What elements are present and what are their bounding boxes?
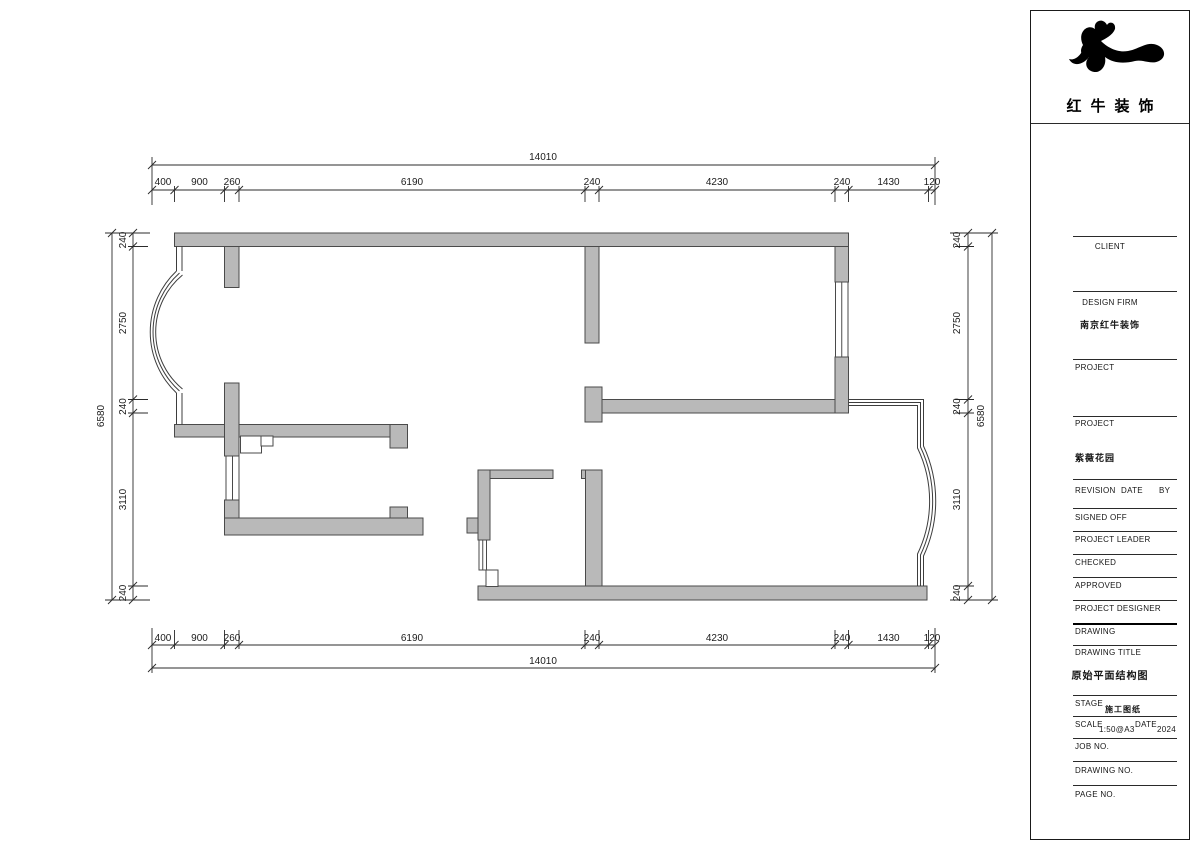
wall-right-pier-upper: [835, 247, 849, 283]
date-label-2: DATE: [1135, 720, 1157, 729]
wall-mid-horizontal-cap: [585, 387, 602, 422]
wall-bottom-left: [225, 518, 424, 535]
dim-left-overall: 6580: [96, 404, 107, 427]
dim-top-5: 4230: [706, 177, 729, 188]
dim-bottom-6: 240: [834, 633, 851, 644]
dim-bottom-4: 240: [584, 633, 601, 644]
wall-group: [175, 233, 928, 600]
dim-bottom-overall: 14010: [529, 656, 557, 667]
dim-left-1: 2750: [118, 311, 129, 334]
design-firm-name: 南京红牛装饰: [1031, 318, 1189, 331]
step-detail-large: [241, 436, 262, 453]
dim-top-7: 1430: [877, 177, 900, 188]
design-firm-label: DESIGN FIRM: [1031, 298, 1189, 307]
wall-mid-horizontal: [599, 400, 835, 414]
page-no-label: PAGE NO.: [1075, 790, 1115, 799]
dim-top-0: 400: [155, 177, 172, 188]
client-label: CLIENT: [1031, 242, 1189, 251]
wall-top: [175, 233, 849, 247]
wall-right-pier-lower: [835, 357, 849, 413]
dim-right-overall: 6580: [976, 404, 987, 427]
project-designer-label: PROJECT DESIGNER: [1075, 604, 1161, 613]
drawing-no-label: DRAWING NO.: [1075, 766, 1133, 775]
dim-top-3: 6190: [401, 177, 424, 188]
dim-bottom-1: 900: [191, 633, 208, 644]
project-label-2: PROJECT: [1075, 419, 1114, 428]
wall-bottom-left-notch: [390, 507, 408, 518]
dim-bottom-2: 260: [224, 633, 241, 644]
dim-right-1: 2750: [952, 311, 963, 334]
fixture-box: [486, 570, 498, 587]
dim-top-4: 240: [584, 177, 601, 188]
dim-right-3: 3110: [952, 488, 963, 510]
dim-top-8: 120: [924, 177, 941, 188]
dim-bottom-0: 400: [155, 633, 172, 644]
wall-bottom-right: [478, 586, 927, 600]
wall-pier-top-left: [225, 247, 240, 288]
dim-bottom-7: 1430: [877, 633, 900, 644]
right-bay-middle: [849, 403, 933, 587]
divider: [1031, 123, 1189, 124]
project-leader-label: PROJECT LEADER: [1075, 535, 1151, 544]
dim-bottom-5: 4230: [706, 633, 729, 644]
dim-top-overall: 14010: [529, 152, 557, 163]
dim-right-4: 240: [952, 584, 963, 601]
by-label: BY: [1159, 486, 1170, 495]
drawing-label: DRAWING: [1075, 627, 1115, 636]
checked-label: CHECKED: [1075, 558, 1116, 567]
scale-value: 1:50@A3: [1099, 725, 1135, 734]
wall-mid-bottom-step: [582, 470, 586, 479]
company-name: 红牛装饰: [1031, 95, 1189, 116]
revision-label: REVISION: [1075, 486, 1116, 495]
date-label: DATE: [1121, 486, 1143, 495]
right-bay-outer: [849, 400, 936, 587]
dim-right-2: 240: [952, 398, 963, 415]
approved-label: APPROVED: [1075, 581, 1122, 590]
stage-label: STAGE: [1075, 699, 1103, 708]
dim-bottom-8: 120: [924, 633, 941, 644]
wall-left-bottom-cap: [390, 425, 408, 449]
drawing-sheet: 14010 400 900 260 6190 240 4230 240 1430…: [0, 0, 1200, 852]
dim-left-4: 240: [118, 584, 129, 601]
drawing-title: 原始平面结构图: [1031, 667, 1189, 682]
wall-mid-top-vertical: [585, 247, 599, 344]
stage-value: 施工图纸: [1105, 704, 1141, 715]
dim-top-6: 240: [834, 177, 851, 188]
dim-left-0: 240: [118, 231, 129, 248]
wall-left-pier-long: [225, 383, 240, 456]
dim-left-3: 3110: [118, 488, 129, 510]
wall-small-room-left: [478, 470, 490, 540]
wall-small-room-bump: [467, 518, 478, 533]
project-label-1: PROJECT: [1075, 363, 1114, 372]
dim-top-1: 900: [191, 177, 208, 188]
wall-left-bottom-band: [175, 425, 391, 438]
drawing-title-label: DRAWING TITLE: [1075, 648, 1141, 657]
dim-bottom-3: 6190: [401, 633, 424, 644]
date-value: 2024: [1157, 725, 1176, 734]
floor-plan-drawing: 14010 400 900 260 6190 240 4230 240 1430…: [0, 0, 1200, 852]
dim-top-2: 260: [224, 177, 241, 188]
dim-right-0: 240: [952, 231, 963, 248]
signed-off-label: SIGNED OFF: [1075, 513, 1127, 522]
redbull-logo-mark: [1031, 19, 1189, 99]
title-block: 红牛装饰 CLIENT DESIGN FIRM 南京红牛装饰 PROJECT P…: [1030, 10, 1190, 840]
right-bay-inner: [849, 406, 930, 587]
step-detail-small: [261, 436, 273, 446]
dim-left-2: 240: [118, 398, 129, 415]
wall-mid-bottom-vertical: [586, 470, 603, 600]
job-no-label: JOB NO.: [1075, 742, 1109, 751]
project-name: 紫薇花园: [1075, 451, 1115, 464]
left-bay-arc: [150, 271, 176, 393]
